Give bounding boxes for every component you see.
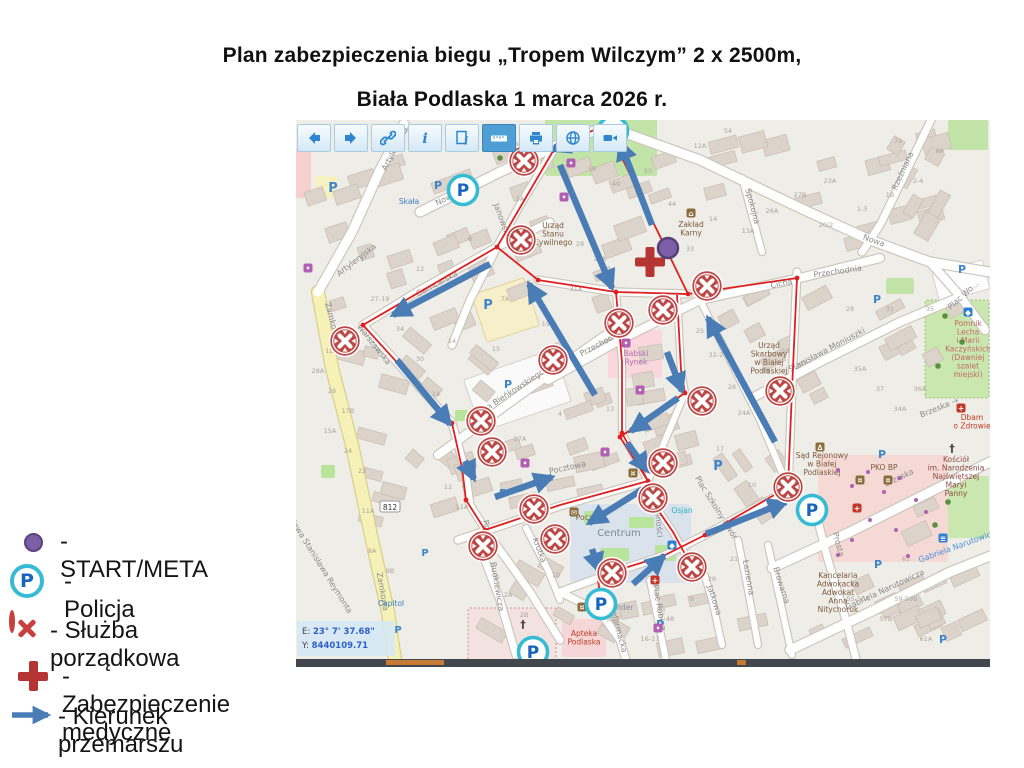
direction-arrow-icon	[10, 706, 62, 729]
svg-text:BabskiRynek: BabskiRynek	[624, 349, 649, 367]
svg-text:P: P	[328, 181, 338, 196]
svg-text:P: P	[874, 558, 882, 571]
svg-text:17B: 17B	[342, 407, 355, 415]
svg-text:7A: 7A	[501, 295, 510, 303]
svg-text:35: 35	[926, 305, 934, 313]
svg-text:12: 12	[444, 483, 452, 491]
svg-text:34A: 34A	[894, 405, 907, 413]
svg-text:27-19: 27-19	[371, 295, 390, 303]
svg-text:32-2: 32-2	[709, 351, 724, 359]
video-button[interactable]	[593, 124, 627, 152]
svg-text:P: P	[958, 263, 966, 276]
svg-text:1B: 1B	[886, 191, 895, 199]
coord-e-label: E:	[302, 627, 310, 637]
svg-text:Osjan: Osjan	[671, 506, 692, 515]
svg-text:9A: 9A	[368, 547, 377, 555]
svg-text:12: 12	[416, 265, 424, 273]
info-button[interactable]: i	[408, 124, 442, 152]
svg-text:13A: 13A	[742, 227, 755, 235]
svg-text:◆: ◆	[965, 308, 971, 317]
svg-text:⌂: ⌂	[688, 209, 693, 218]
svg-text:•: •	[569, 159, 574, 168]
globe-button[interactable]	[556, 124, 590, 152]
svg-text:¤: ¤	[886, 476, 891, 485]
svg-text:7a: 7a	[894, 137, 902, 145]
svg-text:◆: ◆	[669, 541, 675, 550]
svg-text:28A: 28A	[312, 367, 325, 375]
svg-text:20/2: 20/2	[819, 221, 834, 229]
svg-text:P: P	[878, 448, 886, 461]
svg-text:¤: ¤	[631, 469, 636, 478]
svg-text:≡: ≡	[940, 534, 946, 543]
svg-text:2-4: 2-4	[913, 177, 924, 185]
svg-text:1-3: 1-3	[857, 205, 868, 213]
legend: - START/META P - Policja - Służba porząd…	[0, 0, 6, 18]
svg-text:ZakładKarny: ZakładKarny	[678, 220, 704, 238]
svg-text:11A: 11A	[362, 507, 375, 515]
police-icon: P	[10, 564, 44, 598]
svg-text:•: •	[306, 264, 311, 273]
svg-text:¤: ¤	[580, 603, 585, 612]
svg-text:i: i	[422, 131, 427, 146]
svg-text:31: 31	[886, 305, 894, 313]
svg-text:12A: 12A	[694, 142, 707, 150]
measure-button[interactable]	[482, 124, 516, 152]
svg-text:14: 14	[709, 215, 717, 223]
svg-text:•: •	[523, 459, 528, 468]
svg-text:26: 26	[728, 383, 736, 391]
svg-text:21: 21	[730, 555, 738, 563]
svg-text:Skała: Skała	[399, 197, 419, 206]
forward-button[interactable]	[334, 124, 368, 152]
identify-button[interactable]: i	[445, 124, 479, 152]
svg-text:9: 9	[690, 595, 694, 603]
svg-text:15: 15	[492, 345, 500, 353]
svg-text:∆: ∆	[817, 443, 823, 452]
legend-direction: - Kierunek przemarszu	[58, 703, 183, 759]
svg-text:P: P	[939, 633, 947, 646]
svg-text:10: 10	[748, 481, 756, 489]
svg-text:•: •	[624, 339, 629, 348]
svg-text:38: 38	[588, 165, 596, 173]
svg-text:4: 4	[558, 410, 562, 418]
svg-text:P: P	[483, 298, 493, 313]
svg-text:15A: 15A	[324, 427, 337, 435]
svg-text:2A: 2A	[504, 591, 513, 599]
svg-text:34: 34	[396, 325, 404, 333]
link-button[interactable]	[371, 124, 405, 152]
svg-text:•: •	[562, 193, 567, 202]
svg-text:17A: 17A	[514, 435, 527, 443]
svg-text:P: P	[713, 459, 723, 474]
start-meta-icon	[24, 533, 43, 552]
map-toolbar: i i	[297, 124, 627, 152]
svg-text:36A: 36A	[914, 385, 927, 393]
svg-text:PKO BP: PKO BP	[871, 463, 898, 472]
svg-text:AptekaPodlaska: AptekaPodlaska	[568, 629, 601, 647]
svg-text:14: 14	[432, 390, 440, 398]
svg-text:P: P	[504, 378, 512, 391]
svg-text:35A: 35A	[854, 365, 867, 373]
coord-y-value: 8440109.71	[312, 641, 368, 651]
svg-text:14: 14	[448, 337, 456, 345]
svg-text:8A: 8A	[936, 147, 945, 155]
svg-text:P: P	[595, 595, 607, 615]
svg-text:✉: ✉	[571, 508, 577, 517]
svg-text:44: 44	[668, 200, 676, 208]
svg-text:P: P	[434, 179, 442, 192]
svg-text:26A: 26A	[766, 207, 779, 215]
coord-e-value: 23° 7' 37.68"	[313, 627, 375, 637]
svg-text:P: P	[873, 293, 881, 306]
svg-text:33: 33	[686, 245, 694, 253]
svg-text:P: P	[394, 625, 401, 636]
svg-text:48: 48	[666, 615, 674, 623]
svg-text:22: 22	[358, 467, 366, 475]
svg-text:P: P	[421, 548, 428, 559]
svg-text:37: 37	[876, 385, 884, 393]
coord-y-label: Y:	[302, 641, 309, 651]
svg-text:11A: 11A	[456, 503, 469, 511]
svg-text:61A: 61A	[920, 635, 933, 643]
print-button[interactable]	[519, 124, 553, 152]
svg-text:812: 812	[383, 503, 398, 512]
svg-text:57B: 57B	[880, 615, 893, 623]
svg-text:13: 13	[606, 405, 614, 413]
svg-text:P: P	[806, 501, 818, 521]
back-button[interactable]	[297, 124, 331, 152]
svg-text:9B: 9B	[386, 567, 395, 575]
svg-text:+: +	[958, 404, 964, 413]
svg-text:23A: 23A	[824, 177, 837, 185]
svg-text:50: 50	[644, 167, 652, 175]
svg-text:•: •	[603, 448, 608, 457]
svg-text:24: 24	[344, 447, 352, 455]
svg-text:¤: ¤	[858, 476, 863, 485]
svg-text:26: 26	[708, 575, 716, 583]
svg-text:KancelariaAdwokackaAdwokatAnna: KancelariaAdwokackaAdwokatAnnaNitychoruk	[817, 571, 859, 614]
svg-text:+: +	[854, 504, 860, 513]
svg-text:i: i	[464, 135, 468, 147]
svg-text:16-17: 16-17	[641, 635, 660, 643]
svg-text:•: •	[638, 386, 643, 395]
svg-text:28: 28	[576, 240, 584, 248]
svg-text:+: +	[652, 576, 658, 585]
svg-text:†: †	[949, 442, 955, 455]
svg-text:6: 6	[468, 235, 472, 243]
svg-text:24A: 24A	[738, 409, 751, 417]
svg-text:•: •	[656, 624, 661, 633]
svg-text:28: 28	[846, 305, 854, 313]
svg-text:59-59B: 59-59B	[894, 595, 917, 603]
svg-text:26: 26	[328, 387, 336, 395]
svg-text:30: 30	[416, 355, 424, 363]
legend-police: - Policja	[64, 568, 135, 624]
svg-text:Capitol: Capitol	[378, 599, 404, 608]
slide: { "title": { "line1": "Plan zabezpieczen…	[0, 0, 1024, 768]
svg-text:27B: 27B	[794, 191, 807, 199]
svg-text:10: 10	[552, 571, 560, 579]
svg-text:17: 17	[716, 445, 724, 453]
svg-text:54: 54	[724, 127, 732, 135]
svg-text:†: †	[520, 618, 526, 631]
svg-text:P: P	[457, 181, 469, 201]
svg-text:40: 40	[612, 180, 620, 188]
svg-text:25: 25	[696, 327, 704, 335]
coordinate-readout: E: 23° 7' 37.68" Y: 8440109.71	[297, 621, 395, 656]
marshal-icon	[9, 610, 15, 633]
svg-text:Centrum: Centrum	[597, 528, 641, 539]
